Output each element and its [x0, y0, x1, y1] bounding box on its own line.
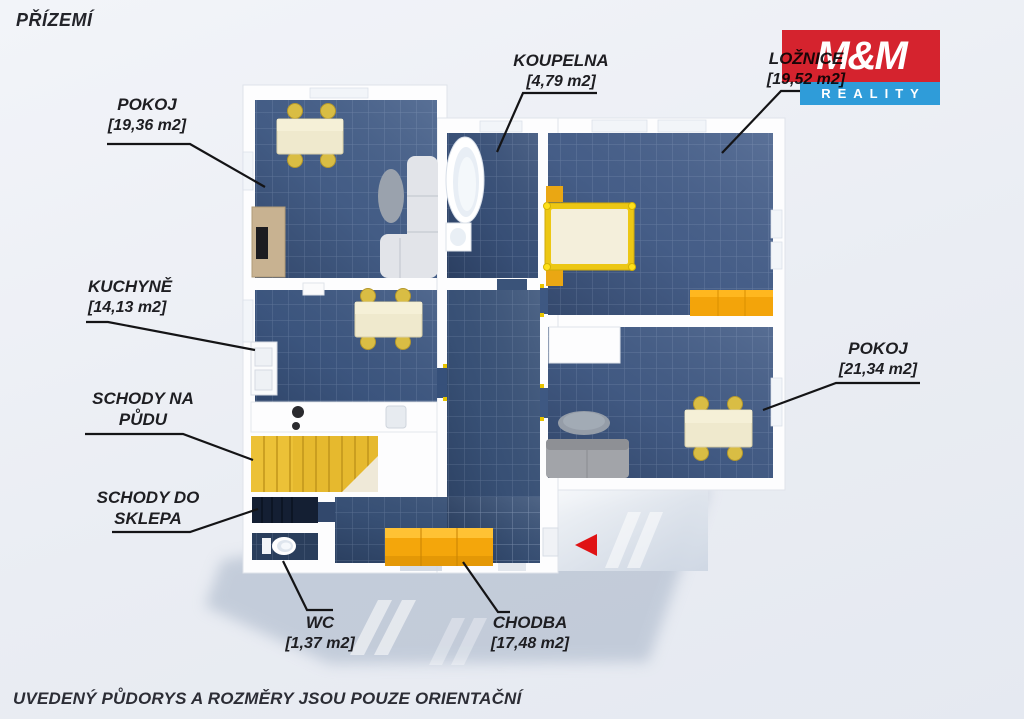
- leader-schody-na-pudu: [85, 434, 253, 460]
- leader-pokoj-horni: [107, 144, 265, 187]
- room-label-kuchyne: KUCHYNĚ [14,13 m2]: [88, 276, 172, 318]
- room-area: [14,13 m2]: [88, 297, 172, 318]
- room-name: LOŽNICE: [767, 48, 845, 69]
- sofa: [546, 439, 629, 478]
- leader-kuchyne: [86, 322, 255, 350]
- pokoj-dolni-door: [540, 388, 548, 418]
- room-name: CHODBA: [491, 612, 569, 633]
- leader-pokoj-dolni: [763, 383, 920, 410]
- entrance-door: [543, 528, 558, 556]
- floorplan-page: PŘÍZEMÍ POKOJ [19,36 m2] KOUPELNA [4,79 …: [0, 0, 1024, 719]
- room-name: POKOJ: [839, 338, 917, 359]
- room-area: [4,79 m2]: [513, 71, 608, 92]
- room-area: [1,37 m2]: [285, 633, 354, 654]
- kitchen-counter: [251, 402, 437, 432]
- room-label-loznice: LOŽNICE [19,52 m2]: [767, 48, 845, 90]
- room-name: SCHODY NA PŮDU: [87, 388, 199, 430]
- room-name: POKOJ: [108, 94, 186, 115]
- room-area: [21,34 m2]: [839, 359, 917, 380]
- toilet: [262, 537, 296, 555]
- room-name: WC: [285, 612, 354, 633]
- stairs-to-attic: [251, 436, 378, 492]
- counter-sink: [386, 406, 406, 428]
- stove-burner: [292, 406, 304, 418]
- room-label-schody-na-pudu: SCHODY NA PŮDU: [87, 388, 199, 430]
- room-name: KUCHYNĚ: [88, 276, 172, 297]
- bathroom-door: [497, 279, 527, 290]
- room-name: KOUPELNA: [513, 50, 608, 71]
- room-label-chodba: CHODBA [17,48 m2]: [491, 612, 569, 654]
- nightstand: [546, 269, 563, 286]
- tv: [256, 227, 268, 259]
- room-label-wc: WC [1,37 m2]: [285, 612, 354, 654]
- bedroom-door: [540, 288, 548, 314]
- room-label-pokoj-horni: POKOJ [19,36 m2]: [108, 94, 186, 136]
- hall-sideboard: [385, 528, 493, 566]
- room-label-pokoj-dolni: POKOJ [21,34 m2]: [839, 338, 917, 380]
- disclaimer-text: UVEDENÝ PŮDORYS A ROZMĚRY JSOU POUZE ORI…: [13, 689, 521, 709]
- room-label-koupelna: KOUPELNA [4,79 m2]: [513, 50, 608, 92]
- side-table: [378, 169, 404, 223]
- room-area: [17,48 m2]: [491, 633, 569, 654]
- floor-title: PŘÍZEMÍ: [16, 10, 93, 31]
- bed-mattress: [551, 209, 628, 264]
- room-area: [19,36 m2]: [108, 115, 186, 136]
- dresser: [690, 290, 773, 316]
- wardrobe: [549, 327, 620, 363]
- room-label-schody-do-sklepa: SCHODY DO SKLEPA: [92, 487, 204, 529]
- nightstand: [546, 186, 563, 202]
- pokoj-horni-door-leaf: [303, 283, 324, 295]
- room-area: [19,52 m2]: [767, 69, 845, 90]
- stove-burner: [292, 422, 300, 430]
- kitchen-door: [437, 368, 447, 398]
- room-name: SCHODY DO SKLEPA: [92, 487, 204, 529]
